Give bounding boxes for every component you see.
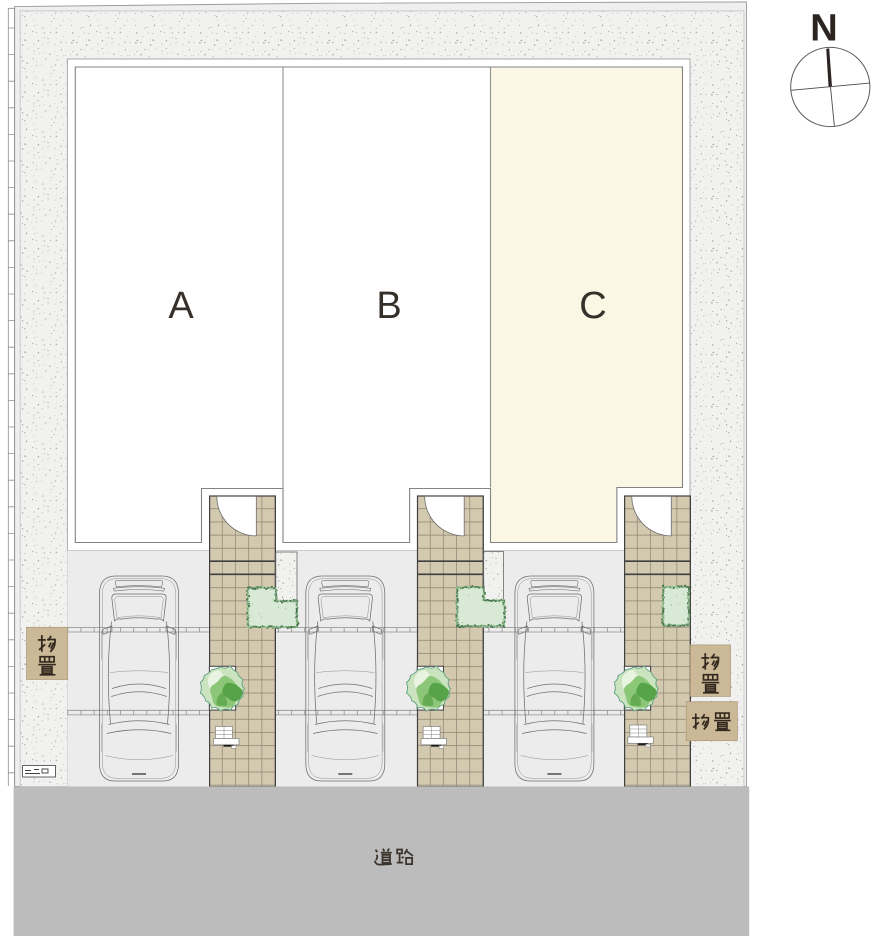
svg-text:N: N	[810, 8, 837, 50]
svg-text:A: A	[168, 285, 194, 327]
svg-text:C: C	[579, 285, 606, 327]
svg-text:B: B	[376, 285, 401, 327]
